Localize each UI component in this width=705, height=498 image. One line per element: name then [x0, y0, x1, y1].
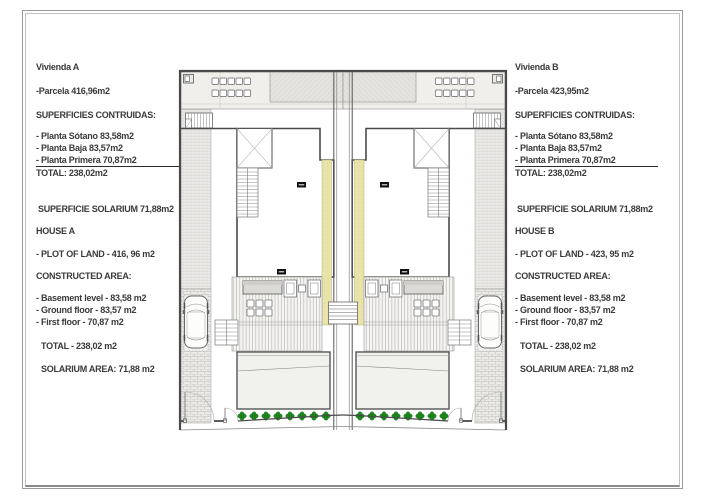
solarium-area-b: SOLARIUM AREA: 71,88 m2 — [515, 363, 685, 375]
superficies-heading-b: SUPERFICIES CONTRUIDAS: — [515, 109, 685, 121]
planta-sotano-b: - Planta Sótano 83,58m2 — [515, 130, 685, 142]
planta-baja-b: - Planta Baja 83,57m2 — [515, 142, 685, 154]
plot-of-land-b: - PLOT OF LAND - 423, 95 m2 — [515, 248, 685, 260]
basement-b: - Basement level - 83,58 m2 — [515, 292, 685, 304]
house-b-label: HOUSE B — [515, 225, 685, 237]
house-a-half-plan — [180, 71, 343, 430]
constructed-heading-b: CONSTRUCTED AREA: — [515, 270, 685, 282]
superficie-solarium-b: SUPERFICIE SOLARIUM 71,88m2 — [515, 203, 685, 215]
house-b-half-plan — [343, 71, 506, 430]
vivienda-b-title: Vivienda B — [515, 61, 685, 73]
vivienda-b-specs: Vivienda B -Parcela 423,95m2 SUPERFICIES… — [515, 61, 685, 375]
total-es-b: TOTAL: 238,02m2 — [515, 167, 685, 179]
first-floor-b: - First floor - 70,87 m2 — [515, 316, 685, 328]
site-plan-drawing — [178, 69, 508, 445]
drawing-sheet: Vivienda A -Parcela 416,96m2 SUPERFICIES… — [0, 0, 705, 498]
planta-primera-a: - Planta Primera 70,87m2 — [36, 154, 179, 167]
ground-floor-b: - Ground floor - 83,57 m2 — [515, 304, 685, 316]
total-en-b: TOTAL - 238,02 m2 — [515, 340, 685, 352]
planta-primera-b: - Planta Primera 70,87m2 — [515, 154, 658, 167]
parcela-b: -Parcela 423,95m2 — [515, 85, 685, 97]
